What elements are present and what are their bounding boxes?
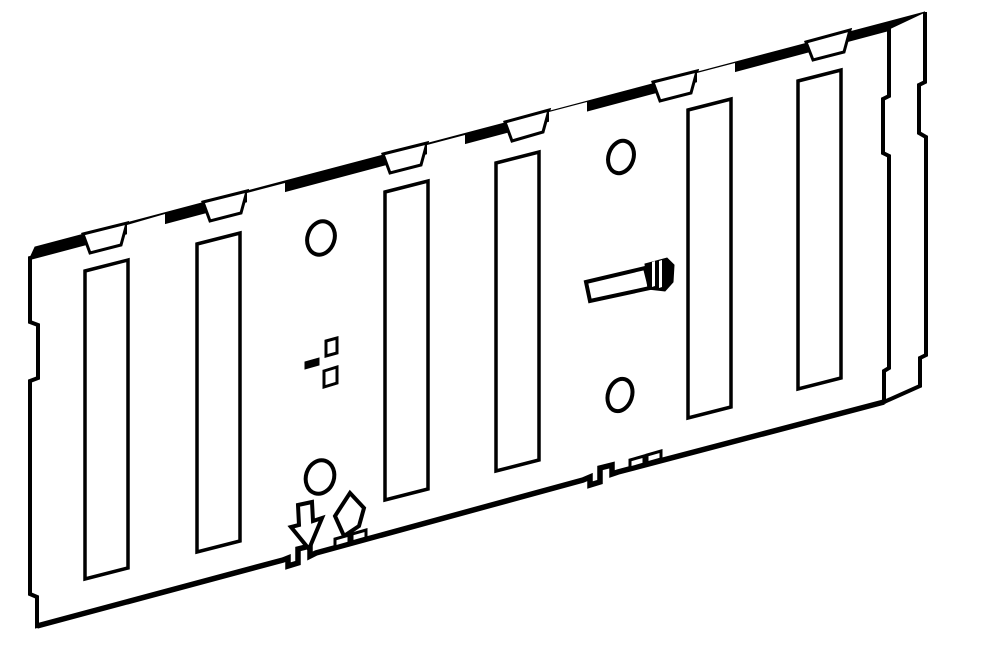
cross-cutout-upper: [326, 338, 337, 356]
plate-front-face: [30, 29, 889, 626]
slot-1: [85, 260, 128, 579]
slot-4: [496, 152, 539, 471]
locating-tab-cap-slit-2: [659, 260, 662, 288]
slot-6: [798, 70, 841, 389]
diagram-canvas: [0, 0, 1000, 651]
slot-2: [197, 233, 240, 552]
slot-3: [385, 181, 428, 500]
diagram-stage: [0, 0, 1000, 651]
locating-tab-cap-slit-1: [652, 261, 655, 287]
cross-cutout-lower: [324, 367, 337, 387]
slot-5: [688, 99, 731, 418]
